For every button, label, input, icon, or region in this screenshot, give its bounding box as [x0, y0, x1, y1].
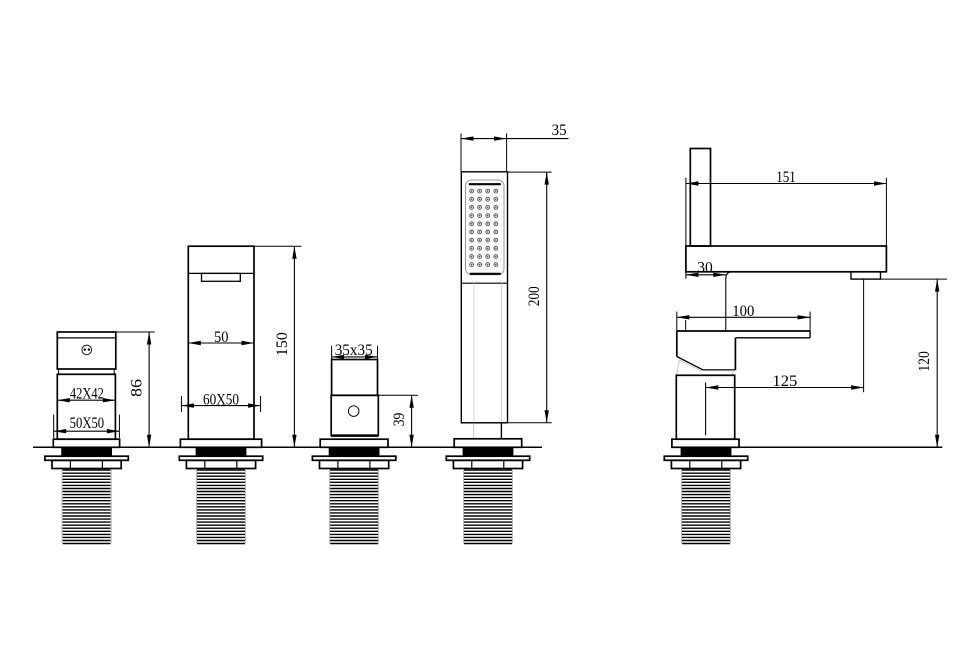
- svg-text:150: 150: [274, 332, 291, 356]
- svg-text:30: 30: [697, 259, 713, 276]
- svg-text:100: 100: [732, 303, 754, 320]
- svg-text:200: 200: [526, 286, 543, 306]
- svg-text:125: 125: [772, 373, 797, 390]
- svg-text:39: 39: [391, 413, 408, 427]
- svg-text:50X50: 50X50: [70, 415, 105, 432]
- svg-text:86: 86: [129, 379, 146, 397]
- svg-text:35: 35: [552, 122, 567, 139]
- svg-text:120: 120: [916, 351, 933, 372]
- svg-text:151: 151: [776, 169, 796, 186]
- svg-text:50: 50: [214, 329, 229, 346]
